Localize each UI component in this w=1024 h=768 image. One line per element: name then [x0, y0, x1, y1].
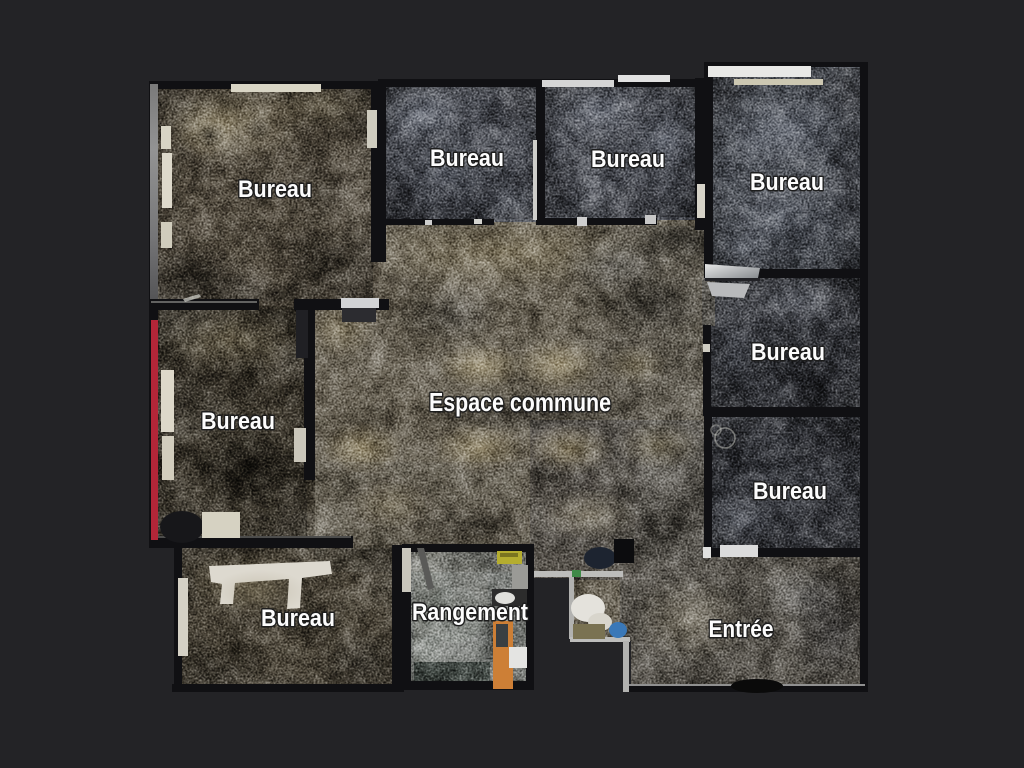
svg-text:Bureau: Bureau	[430, 145, 504, 172]
svg-text:Bureau: Bureau	[238, 176, 312, 203]
svg-text:Bureau: Bureau	[261, 605, 335, 632]
svg-text:Bureau: Bureau	[751, 339, 825, 366]
svg-text:Entrée: Entrée	[709, 616, 774, 643]
svg-text:Bureau: Bureau	[201, 408, 275, 435]
svg-text:Bureau: Bureau	[750, 169, 824, 196]
svg-text:Espace commune: Espace commune	[429, 387, 611, 417]
svg-text:Bureau: Bureau	[753, 478, 827, 505]
svg-text:Bureau: Bureau	[591, 146, 665, 173]
svg-text:Rangement: Rangement	[412, 599, 528, 626]
